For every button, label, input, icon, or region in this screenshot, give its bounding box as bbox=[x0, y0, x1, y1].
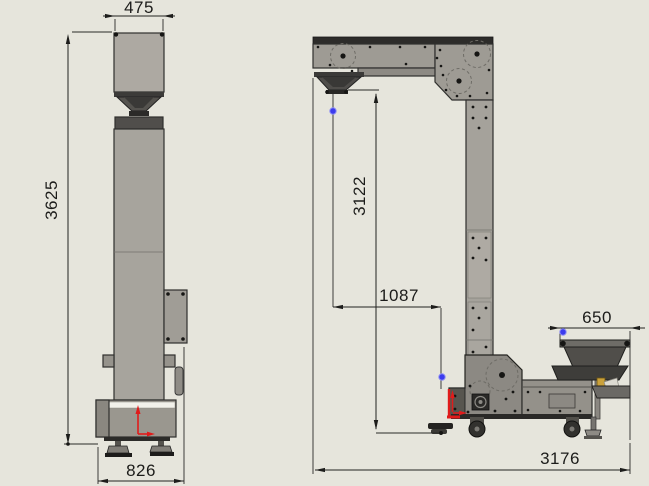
head-box bbox=[114, 33, 164, 92]
dim-label-3625: 3625 bbox=[42, 180, 61, 220]
caster-right bbox=[564, 417, 580, 437]
dim-label-3176: 3176 bbox=[540, 449, 580, 468]
head-corner-housing bbox=[435, 44, 493, 100]
top-arm-cover bbox=[313, 37, 493, 44]
caster-left bbox=[469, 417, 485, 437]
outlet-bolt-left bbox=[325, 90, 329, 94]
outfeed-chute bbox=[592, 386, 630, 398]
mount-ear-right bbox=[164, 355, 175, 367]
drawing-page: 475 3625 826 bbox=[0, 0, 649, 486]
bottom-arm-panel bbox=[549, 394, 575, 408]
top-arm-lip bbox=[358, 68, 436, 76]
hopper-body bbox=[564, 347, 626, 367]
dark-band bbox=[115, 117, 163, 129]
funnel-flange bbox=[114, 92, 164, 97]
base-rail bbox=[104, 437, 170, 441]
mount-ear-left bbox=[103, 355, 114, 367]
dim-label-1087: 1087 bbox=[379, 286, 419, 305]
vertex-dot-discharge bbox=[330, 108, 336, 114]
column-panel-2 bbox=[468, 302, 491, 355]
dim-label-650: 650 bbox=[582, 308, 612, 327]
engineering-drawing: 475 3625 826 bbox=[0, 0, 649, 486]
column-panel-1 bbox=[468, 232, 491, 298]
hopper-rim bbox=[560, 340, 630, 347]
dim-label-3122: 3122 bbox=[350, 176, 369, 216]
elevator-column-front bbox=[114, 129, 164, 400]
outlet-bolt-right bbox=[344, 90, 348, 94]
dim-label-826: 826 bbox=[126, 461, 156, 480]
drain-tube bbox=[175, 367, 183, 395]
vertex-dot-boot bbox=[439, 374, 445, 380]
top-arm bbox=[313, 44, 435, 68]
dim-label-475: 475 bbox=[124, 0, 154, 17]
base-left-cap bbox=[96, 400, 109, 437]
discharge-flange-side bbox=[314, 72, 364, 77]
funnel-outlet bbox=[129, 111, 149, 116]
side-box bbox=[164, 290, 187, 343]
vertex-dot-infeed bbox=[560, 329, 566, 335]
